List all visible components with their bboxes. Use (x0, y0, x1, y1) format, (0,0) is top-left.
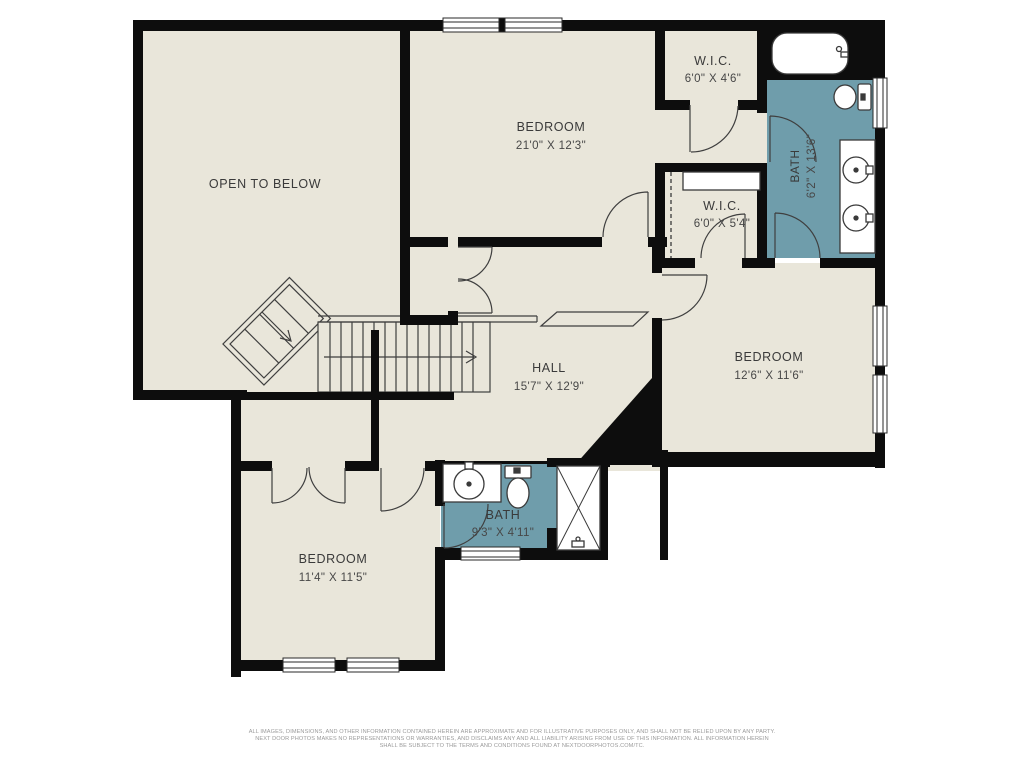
disclaimer: ALL IMAGES, DIMENSIONS, AND OTHER INFORM… (0, 729, 1024, 750)
label-bath-lower: BATH (486, 508, 521, 522)
dims-bedroom-right: 12'6" X 11'6" (734, 370, 803, 382)
window-bath-right (873, 78, 887, 128)
dims-hall: 15'7" X 12'9" (514, 381, 584, 393)
label-hall: HALL (532, 361, 566, 375)
window-bedroom-lower-2 (347, 658, 399, 672)
floor-plan: OPEN TO BELOW BEDROOM 21'0" X 12'3" W.I.… (0, 0, 1024, 768)
closet-shelf (683, 172, 760, 190)
label-bedroom-master: BEDROOM (517, 120, 586, 134)
dims-bath-lower: 9'3" X 4'11" (472, 527, 535, 539)
bathtub (772, 33, 848, 74)
toilet-master (834, 84, 871, 110)
disclaimer-line-3: SHALL BE SUBJECT TO THE TERMS AND CONDIT… (0, 743, 1024, 750)
shower (557, 466, 600, 550)
label-wic-mid: W.I.C. (703, 199, 741, 213)
toilet-lower (505, 466, 531, 508)
stair-opening-railing (541, 312, 648, 326)
label-bedroom-lower: BEDROOM (299, 552, 368, 566)
dims-wic-mid: 6'0" X 5'4" (694, 218, 751, 230)
dims-bedroom-lower: 11'4" X 11'5" (299, 572, 367, 584)
dims-wic-top: 6'0" X 4'6" (685, 73, 742, 85)
bath-master-name: BATH (787, 134, 804, 199)
label-wic-top: W.I.C. (694, 54, 732, 68)
label-bath-master: BATH 6'2" X 13'6" (787, 134, 821, 199)
window-bedroom-right-1 (873, 306, 887, 366)
floor-plan-drawing (0, 0, 1024, 768)
disclaimer-line-2: NEXT DOOR PHOTOS MAKES NO REPRESENTATION… (0, 736, 1024, 743)
window-bedroom-lower-1 (283, 658, 335, 672)
window-bath-lower (461, 547, 520, 560)
vanity-lower (443, 462, 501, 502)
disclaimer-line-1: ALL IMAGES, DIMENSIONS, AND OTHER INFORM… (0, 729, 1024, 736)
label-open-to-below: OPEN TO BELOW (209, 177, 321, 191)
dims-bedroom-master: 21'0" X 12'3" (516, 140, 586, 152)
bath-master-dims: 6'2" X 13'6" (804, 134, 821, 199)
double-vanity (840, 140, 875, 253)
label-bedroom-right: BEDROOM (735, 350, 804, 364)
window-bedroom-right-2 (873, 375, 887, 433)
window-top-bedroom (443, 18, 562, 32)
